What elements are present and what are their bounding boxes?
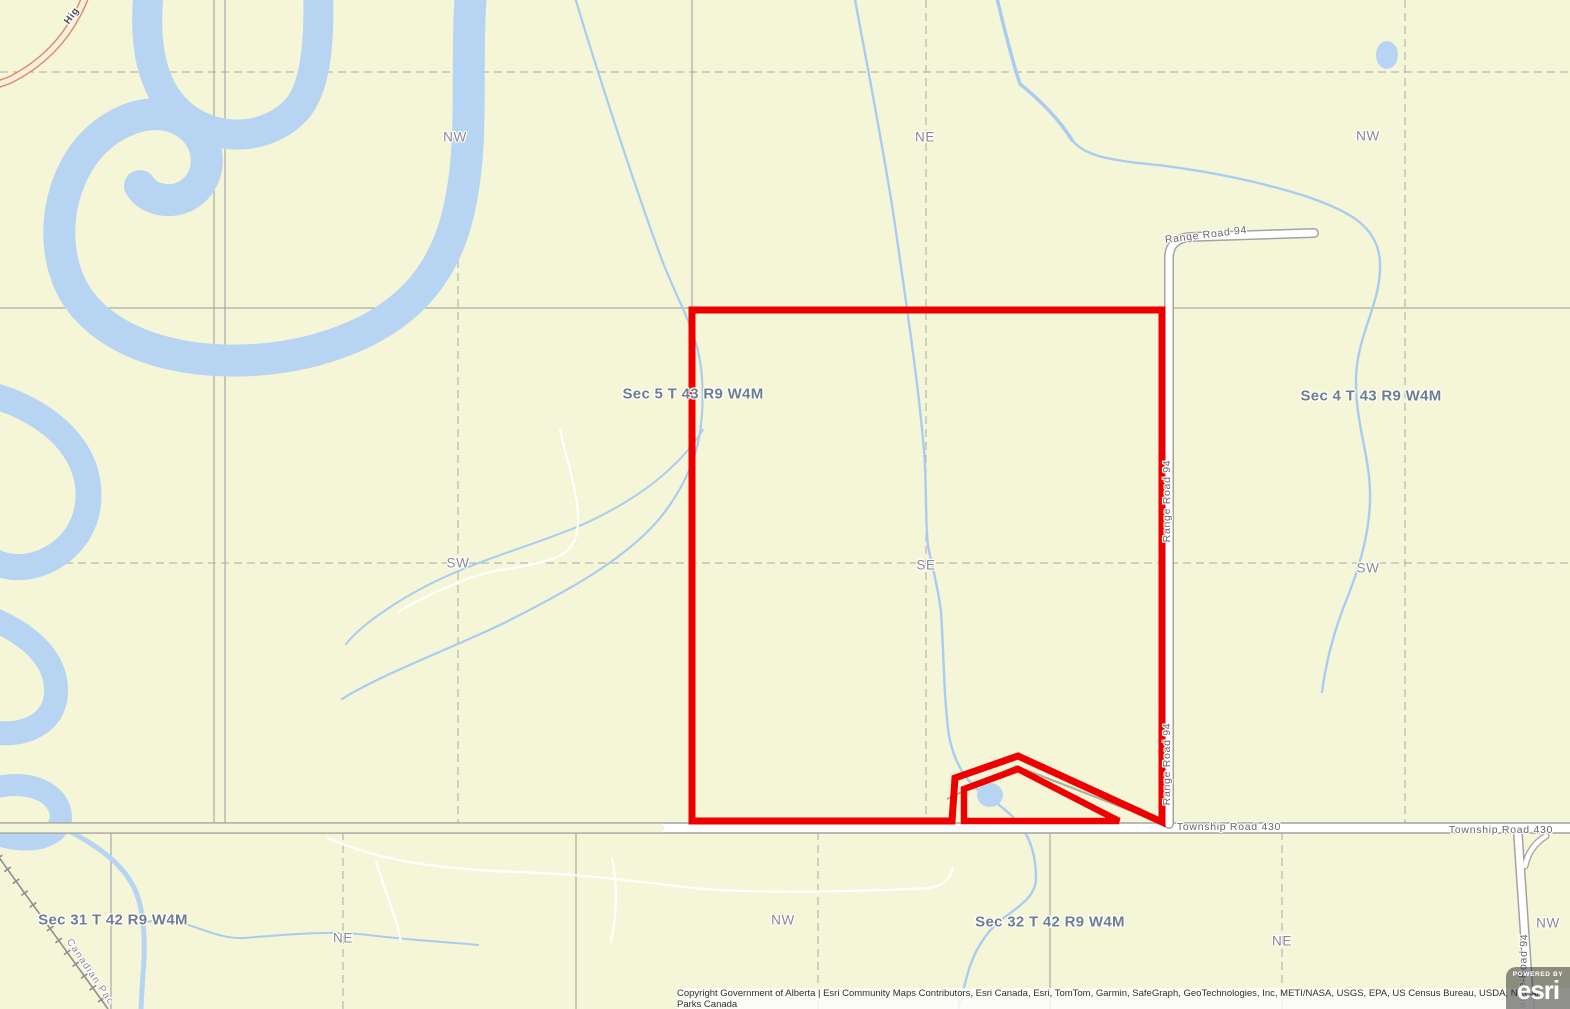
- river: [0, 0, 472, 1009]
- roads: [0, 0, 1570, 1009]
- grid-lines: [0, 0, 1570, 1009]
- attribution-text: Copyright Government of Alberta | Esri C…: [677, 988, 1570, 1009]
- pond-parcel-notch: [977, 783, 1003, 807]
- map-attribution: Copyright Government of Alberta | Esri C…: [677, 988, 1570, 1009]
- railway: [0, 845, 108, 1009]
- pond-northeast: [1376, 41, 1398, 69]
- esri-brand-text: esri: [1517, 978, 1559, 1003]
- map-canvas[interactable]: Sec 5 T 43 R9 W4M Sec 4 T 43 R9 W4M Sec …: [0, 0, 1570, 1009]
- esri-logo[interactable]: POWERED BY esri: [1506, 967, 1570, 1009]
- map-graphics: [0, 0, 1570, 1009]
- ponds: [977, 41, 1398, 807]
- streams: [148, 0, 1380, 1009]
- parcel-highlight[interactable]: [692, 310, 1162, 822]
- parcel-outline[interactable]: [692, 310, 1162, 822]
- trails: [328, 430, 953, 942]
